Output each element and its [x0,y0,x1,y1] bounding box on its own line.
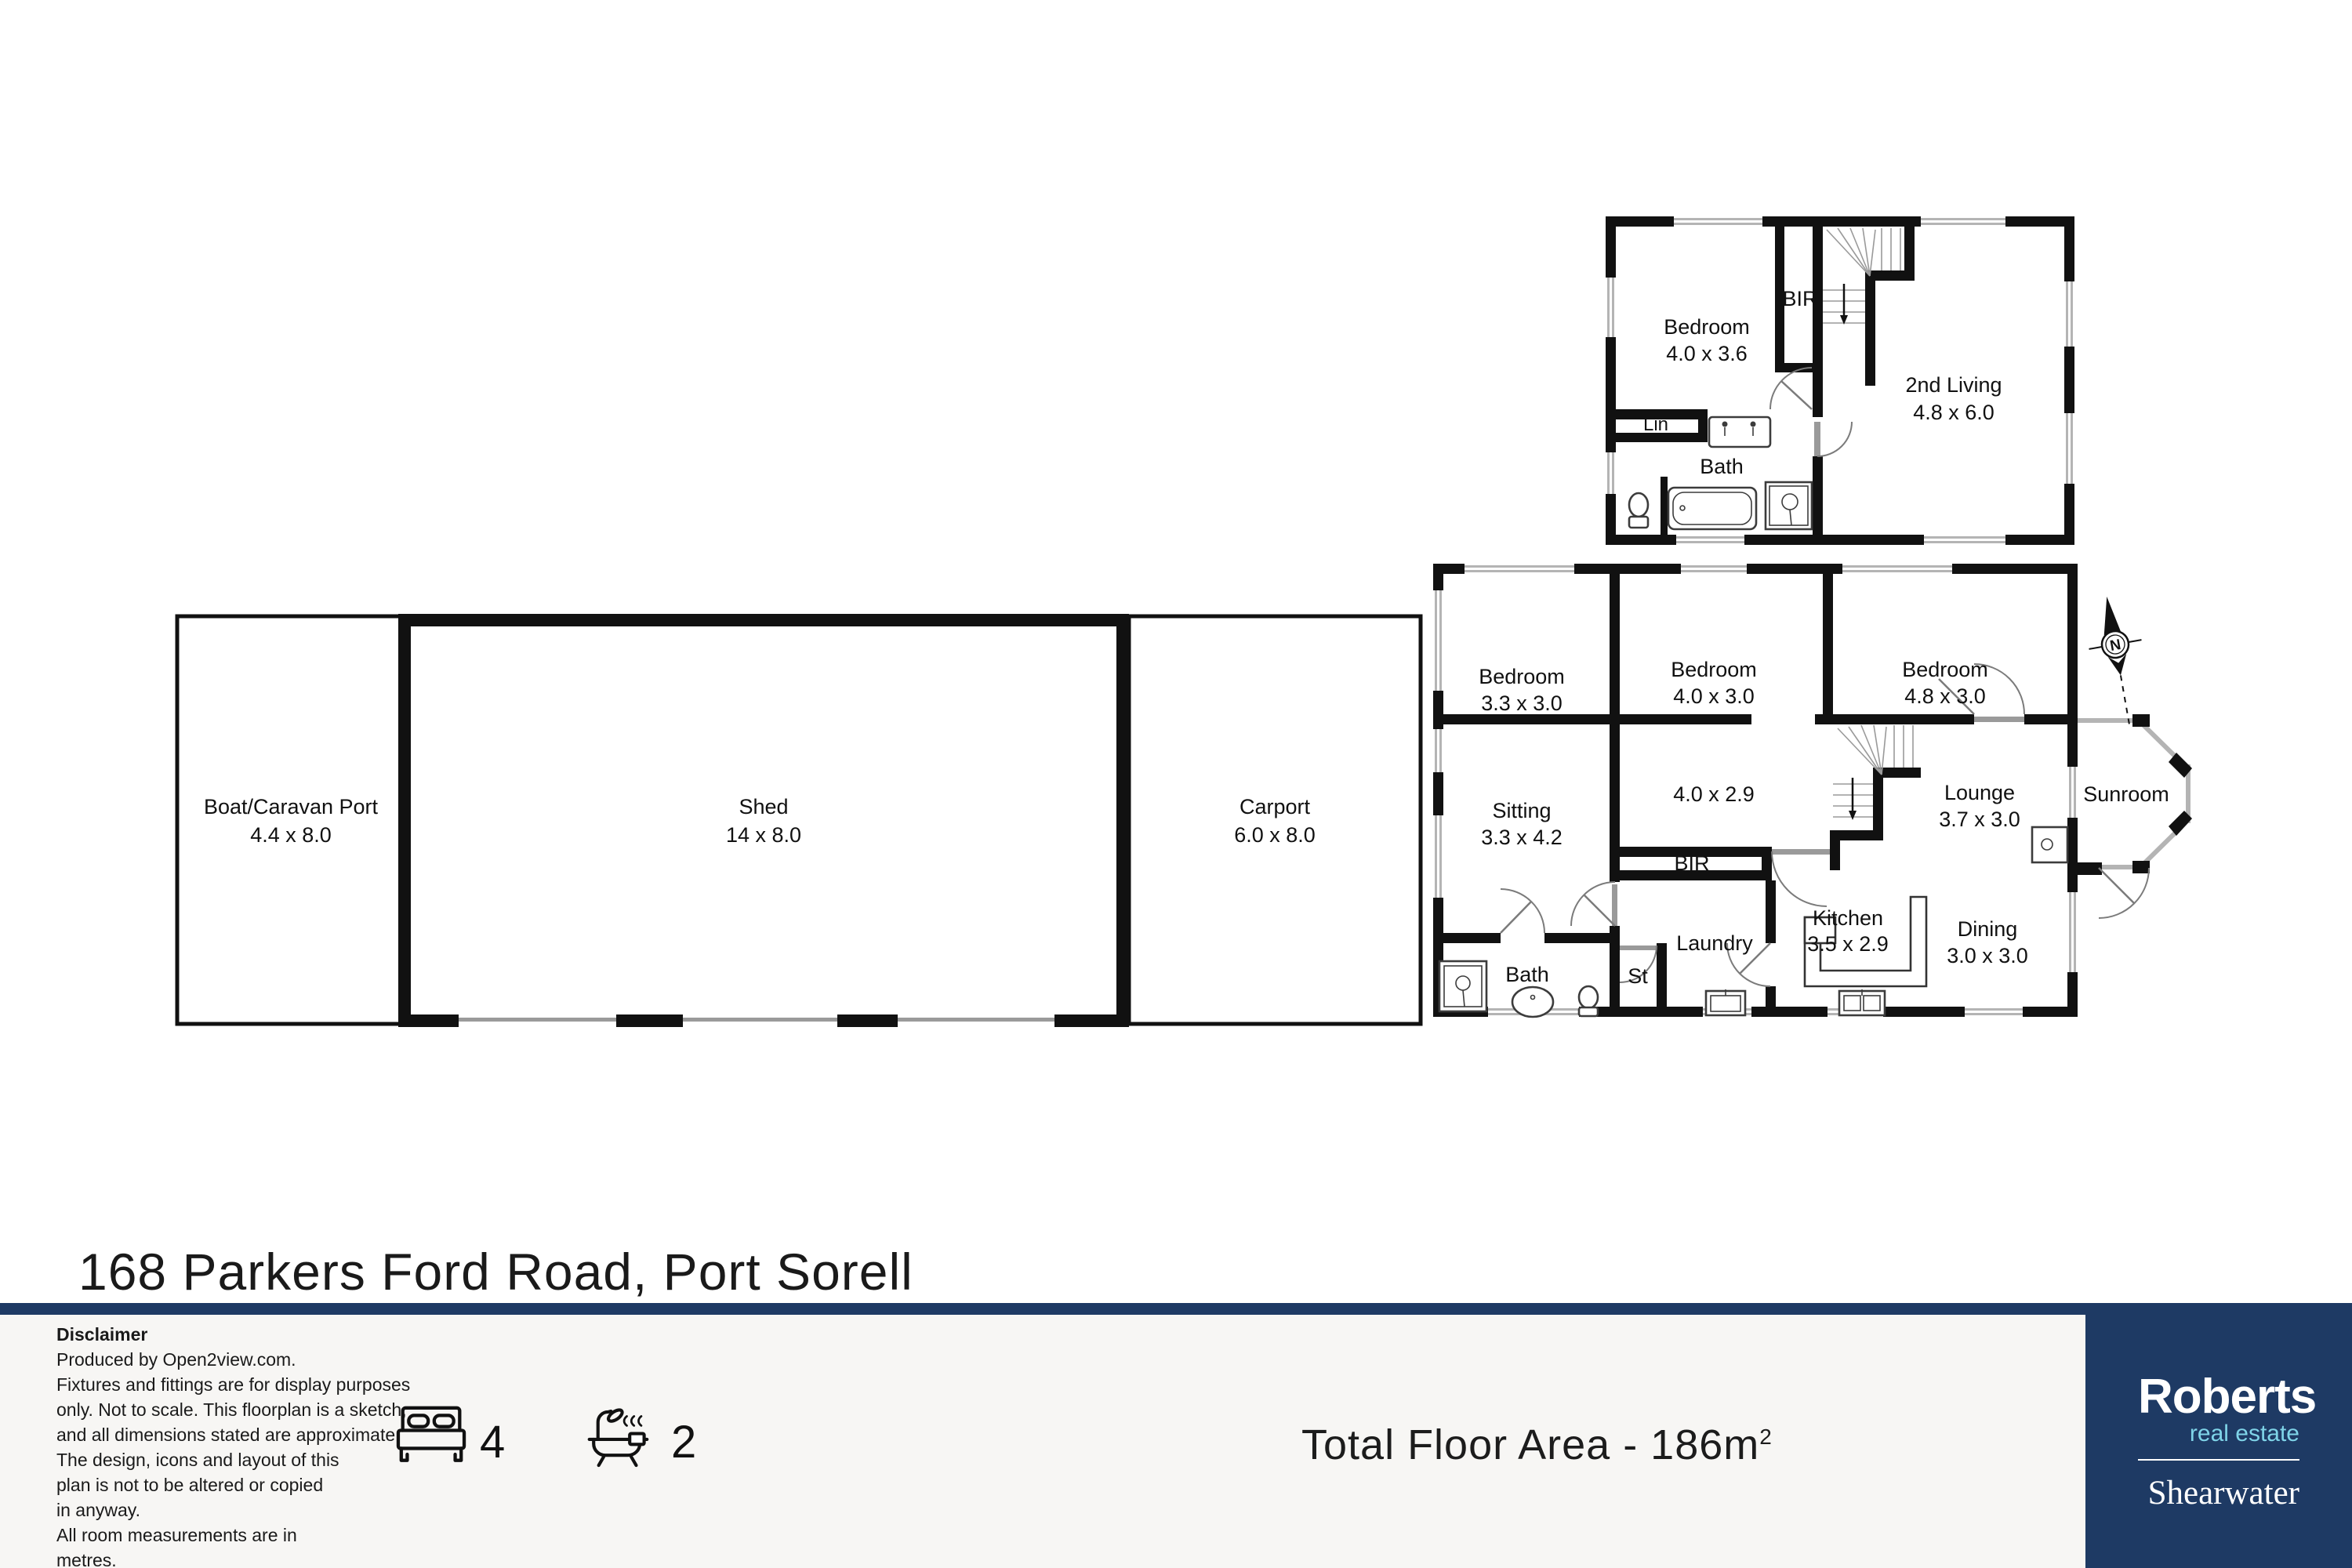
room-dims-dining: 3.0 x 3.0 [1947,944,2028,967]
total-floor-area-sup: 2 [1759,1425,1773,1449]
room-label-bedroom1: Bedroom [1479,665,1565,688]
disclaimer-line: All room measurements are in [56,1523,410,1548]
brand-office: Shearwater [2138,1474,2299,1512]
room-label-bedroom3: Bedroom [1902,658,1988,681]
floorplan-page: Boat/Caravan Port 4.4 x 8.0 Shed 14 x 8.… [0,0,2352,1568]
bath-count: 2 [671,1416,696,1468]
room-label-sunroom: Sunroom [2083,782,2169,806]
bed-count: 4 [480,1416,505,1468]
room-label-upper-bath: Bath [1700,455,1744,478]
shower [1766,482,1812,529]
room-dims-bedroom2: 4.0 x 3.0 [1673,684,1755,708]
compass-icon: N [2081,592,2156,730]
room-label-store: St [1628,964,1648,988]
outbuildings: Boat/Caravan Port 4.4 x 8.0 Shed 14 x 8.… [177,614,1421,1027]
room-label-ground-bir: BIR [1674,851,1709,875]
agency-logo-panel: Roberts real estate Shearwater [2085,1303,2352,1568]
brand-name: Roberts [2138,1375,2299,1419]
shed-roller-door [683,1018,837,1022]
fireplace [2032,827,2067,862]
room-dims-shed: 14 x 8.0 [726,823,801,847]
room-label-boat-port: Boat/Caravan Port [204,795,379,818]
upper-floor-plan: Bedroom 4.0 x 3.6 BIR 2nd Living 4.8 x 6… [1606,216,2074,545]
room-label-kitchen: Kitchen [1813,906,1883,930]
carport-outline [1129,616,1421,1024]
ground-floor-plan: Bedroom 3.3 x 3.0 Bedroom 4.0 x 3.0 Bedr… [1433,564,2192,1017]
shed-roller-door [898,1018,1054,1022]
divider-bar [0,1303,2085,1315]
room-dims-lounge: 3.7 x 3.0 [1939,808,2020,831]
vanity [1709,417,1770,447]
room-label-bedroom2: Bedroom [1671,658,1757,681]
room-label-laundry: Laundry [1676,931,1753,955]
shed-roller-door [459,1018,616,1022]
disclaimer-heading: Disclaimer [56,1322,410,1347]
disclaimer-line: Produced by Open2view.com. [56,1347,410,1372]
total-floor-area-text: Total Floor Area - 186m [1301,1421,1759,1468]
room-label-lounge: Lounge [1944,781,2015,804]
room-dims-2nd-living: 4.8 x 6.0 [1913,401,1994,424]
boat-caravan-port-outline [177,616,405,1024]
room-label-upper-bir: BIR [1782,287,1817,310]
brand-tagline: real estate [2138,1421,2299,1447]
bed-icon [394,1405,469,1472]
toilet [1629,493,1648,517]
kitchen-sink [1839,989,1885,1015]
bath-icon [586,1405,659,1472]
bathtub [1668,488,1756,529]
disclaimer-line: and all dimensions stated are approximat… [56,1422,410,1447]
page-title: 168 Parkers Ford Road, Port Sorell [78,1242,913,1301]
room-label-ground-bath: Bath [1505,963,1549,986]
disclaimer: Disclaimer Produced by Open2view.com. Fi… [56,1322,410,1568]
room-label-lin: Lin [1643,414,1668,435]
room-label-shed: Shed [739,795,788,818]
basin [1512,987,1553,1017]
room-dims-kitchen: 3.5 x 2.9 [1807,932,1889,956]
room-dims-carport: 6.0 x 8.0 [1234,823,1316,847]
room-dims-sitting: 3.3 x 4.2 [1481,826,1563,849]
shower [1439,961,1486,1011]
room-label-carport: Carport [1240,795,1311,818]
brand-divider [2138,1459,2299,1461]
room-label-sitting: Sitting [1492,799,1551,822]
total-floor-area: Total Floor Area - 186m2 [1301,1421,1773,1469]
room-dims-upper-bedroom: 4.0 x 3.6 [1666,342,1748,365]
disclaimer-line: Fixtures and fittings are for display pu… [56,1372,410,1397]
disclaimer-line: metres. [56,1548,410,1568]
disclaimer-line: The design, icons and layout of this [56,1447,410,1472]
laundry-fixtures [1706,989,1745,1015]
disclaimer-line: plan is not to be altered or copied [56,1472,410,1497]
room-label-upper-bedroom: Bedroom [1664,315,1750,339]
room-dims-hall: 4.0 x 2.9 [1673,782,1755,806]
room-dims-bedroom1: 3.3 x 3.0 [1481,691,1563,715]
room-dims-bedroom3: 4.8 x 3.0 [1904,684,1986,708]
toilet [1579,986,1598,1008]
disclaimer-line: only. Not to scale. This floorplan is a … [56,1397,410,1422]
room-label-dining: Dining [1958,917,2018,941]
room-dims-boat-port: 4.4 x 8.0 [250,823,332,847]
room-label-2nd-living: 2nd Living [1905,373,2002,397]
disclaimer-line: in anyway. [56,1497,410,1523]
agency-logo: Roberts real estate Shearwater [2138,1375,2299,1512]
